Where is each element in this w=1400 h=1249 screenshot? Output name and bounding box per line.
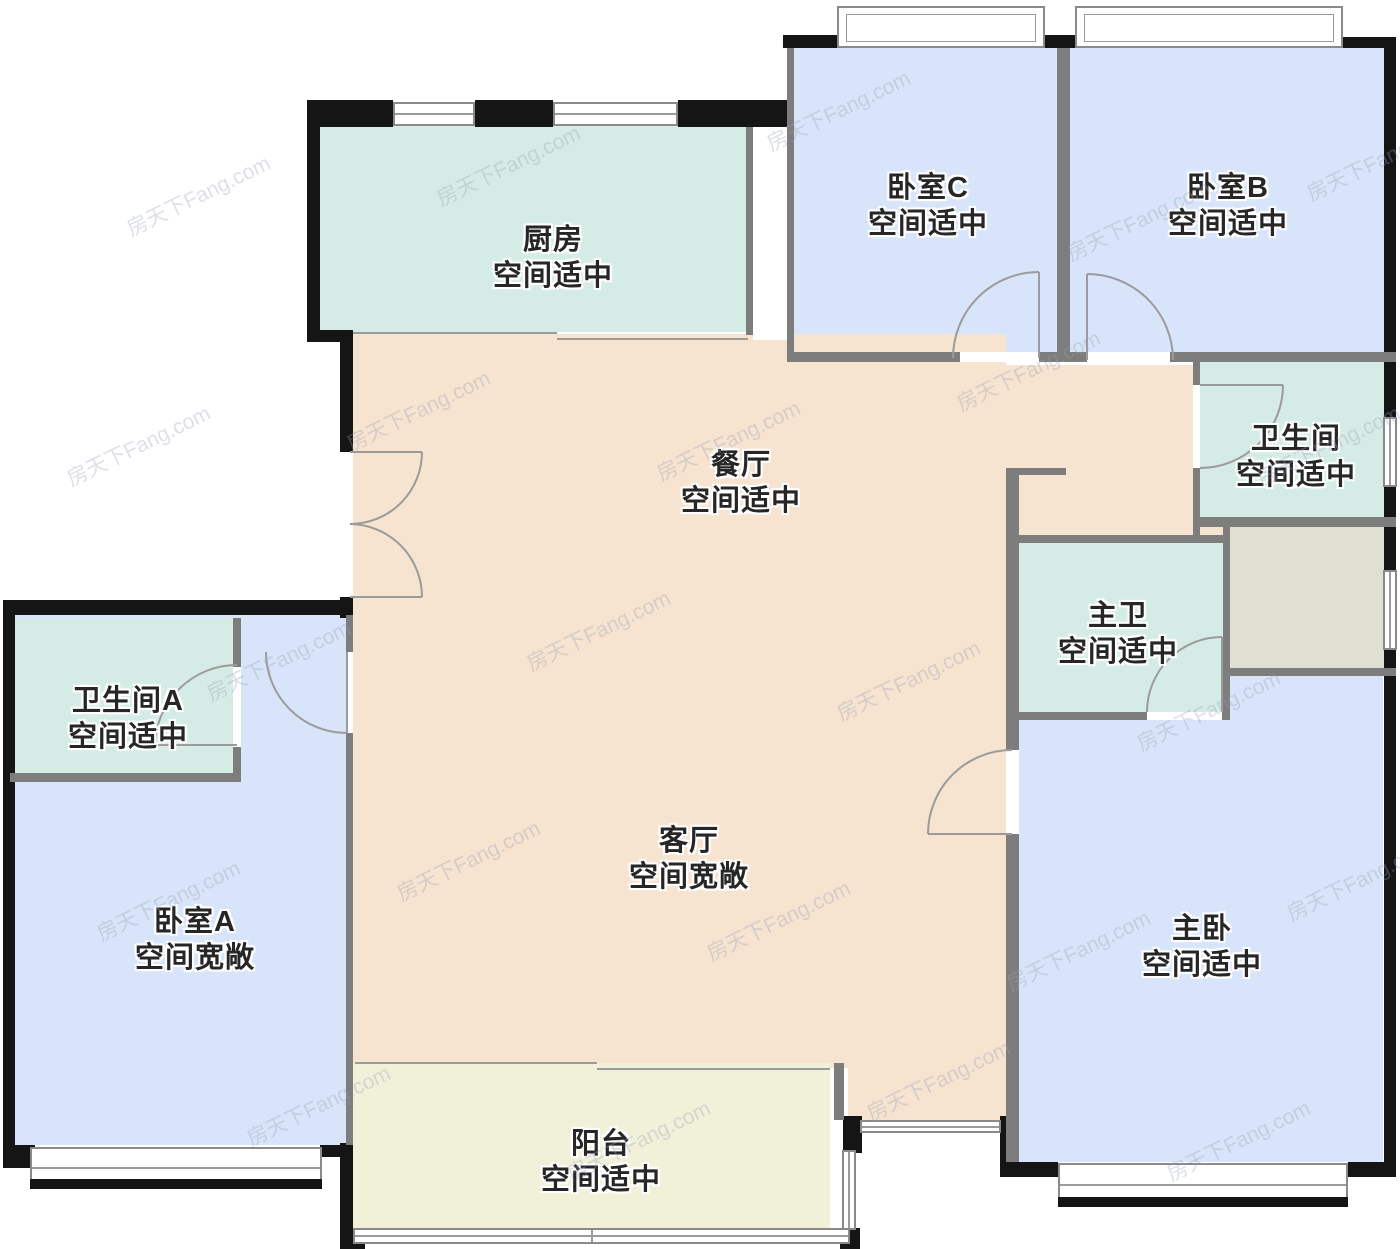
wall [3, 600, 347, 615]
wall [678, 100, 790, 127]
bay-window-bedroom-b [1075, 6, 1343, 48]
room-desc: 空间宽敞 [629, 859, 749, 895]
door-opening [340, 452, 353, 597]
wall [233, 618, 241, 667]
room-desc: 空间适中 [541, 1162, 661, 1198]
door-opening [1193, 385, 1200, 468]
opening-line [353, 332, 557, 334]
wall [3, 600, 15, 1157]
opening-line [597, 1068, 830, 1070]
room-desc: 空间适中 [1058, 634, 1178, 670]
wall [346, 733, 353, 1145]
room-name: 阳台 [541, 1126, 661, 1162]
wall [1343, 37, 1396, 48]
bay-window-bedroom-a [30, 1147, 322, 1189]
room-living-strip [848, 1068, 1006, 1120]
wall [834, 1063, 844, 1120]
room-name: 主卧 [1142, 911, 1262, 947]
opening-line [557, 338, 748, 340]
room-hallway-upper [794, 365, 1193, 535]
wall [307, 100, 393, 127]
bay-window-master [1058, 1163, 1348, 1207]
window-kitchen-1 [393, 102, 475, 126]
wall [10, 773, 241, 782]
wall [1045, 35, 1079, 48]
window-living-bottom [860, 1120, 1001, 1133]
room-desc: 空间适中 [681, 483, 801, 519]
wall [340, 342, 353, 452]
wall [1170, 352, 1396, 362]
room-name: 卫生间A [68, 683, 188, 719]
wall [783, 35, 839, 48]
room-label-bedroom-b: 卧室B 空间适中 [1168, 170, 1288, 242]
room-utility [1230, 527, 1384, 668]
window-kitchen-2 [553, 102, 678, 126]
room-label-bathroom: 卫生间 空间适中 [1236, 421, 1356, 493]
wall [307, 330, 353, 342]
wall [1006, 535, 1227, 543]
door-opening [1006, 750, 1019, 834]
room-desc: 空间适中 [1236, 457, 1356, 493]
room-desc: 空间适中 [68, 719, 188, 755]
wall [1193, 352, 1200, 385]
wall [787, 48, 794, 362]
room-desc: 空间宽敞 [135, 940, 255, 976]
wall [1057, 48, 1070, 362]
wall [1223, 517, 1230, 720]
door-opening [1087, 352, 1170, 362]
room-label-bedroom-c: 卧室C 空间适中 [868, 170, 988, 242]
window-balcony-bottom [353, 1228, 850, 1244]
wall [1006, 468, 1066, 475]
opening-line [355, 1062, 597, 1064]
wall [1006, 834, 1019, 1162]
room-label-balcony: 阳台 空间适中 [541, 1126, 661, 1198]
room-desc: 空间适中 [493, 258, 613, 294]
wall [1006, 468, 1019, 750]
room-name: 卧室C [868, 170, 988, 206]
wall [475, 100, 553, 127]
bay-window-bedroom-c [837, 6, 1045, 48]
room-name: 卧室A [135, 904, 255, 940]
room-desc: 空间适中 [868, 206, 988, 242]
wall [307, 100, 320, 342]
door-opening [1147, 712, 1222, 720]
room-desc: 空间适中 [1142, 947, 1262, 983]
room-name: 餐厅 [681, 447, 801, 483]
room-name: 卫生间 [1236, 421, 1356, 457]
room-label-living: 客厅 空间宽敞 [629, 823, 749, 895]
wall [346, 615, 353, 652]
wall [787, 352, 960, 362]
wall [746, 127, 753, 335]
room-label-master-bath: 主卫 空间适中 [1058, 598, 1178, 670]
room-name: 卧室B [1168, 170, 1288, 206]
room-name: 主卫 [1058, 598, 1178, 634]
watermark: 房天下Fang.com [61, 397, 215, 493]
floor-plan: 厨房 空间适中 卧室C 空间适中 卧室B 空间适中 餐厅 空间适中 卫生间 空间… [0, 0, 1400, 1249]
wall [1000, 1162, 1058, 1177]
room-name: 客厅 [629, 823, 749, 859]
watermark: 房天下Fang.com [121, 147, 275, 243]
room-label-bedroom-a: 卧室A 空间宽敞 [135, 904, 255, 976]
door-opening [346, 652, 353, 733]
wall [1039, 352, 1087, 362]
room-label-kitchen: 厨房 空间适中 [493, 222, 613, 294]
door-opening [233, 667, 241, 747]
wall [1223, 668, 1396, 676]
room-label-master-bedroom: 主卧 空间适中 [1142, 911, 1262, 983]
window-utility-right [1383, 570, 1397, 650]
room-label-dining: 餐厅 空间适中 [681, 447, 801, 519]
room-label-bathroom-a: 卫生间A 空间适中 [68, 683, 188, 755]
door-opening [960, 352, 1039, 362]
room-name: 厨房 [493, 222, 613, 258]
shaft-sliver [753, 127, 787, 340]
window-balcony-right [842, 1150, 856, 1230]
room-desc: 空间适中 [1168, 206, 1288, 242]
window-bathroom-right [1383, 417, 1397, 487]
